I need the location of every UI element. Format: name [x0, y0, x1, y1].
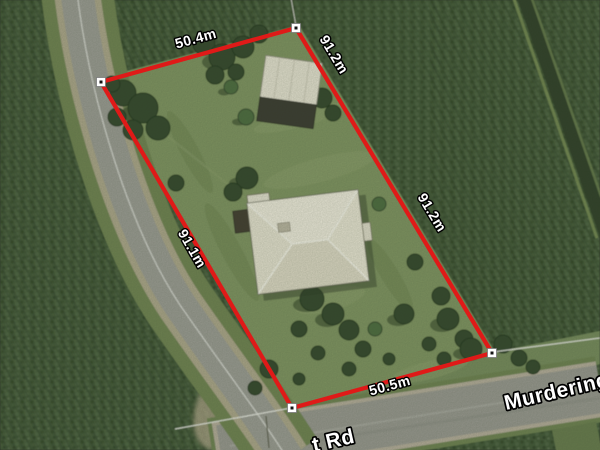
corner-marker-sw[interactable] [288, 404, 297, 413]
corner-marker-ne[interactable] [292, 24, 301, 33]
map-canvas: 50.4m 91.2m 91.2m 91.1m 50.5m Murdering … [0, 0, 600, 450]
corner-marker-se[interactable] [488, 349, 497, 358]
corner-marker-nw[interactable] [97, 78, 106, 87]
photo-grain-overlay [0, 0, 600, 450]
aerial-map: 50.4m 91.2m 91.2m 91.1m 50.5m Murdering … [0, 0, 600, 450]
